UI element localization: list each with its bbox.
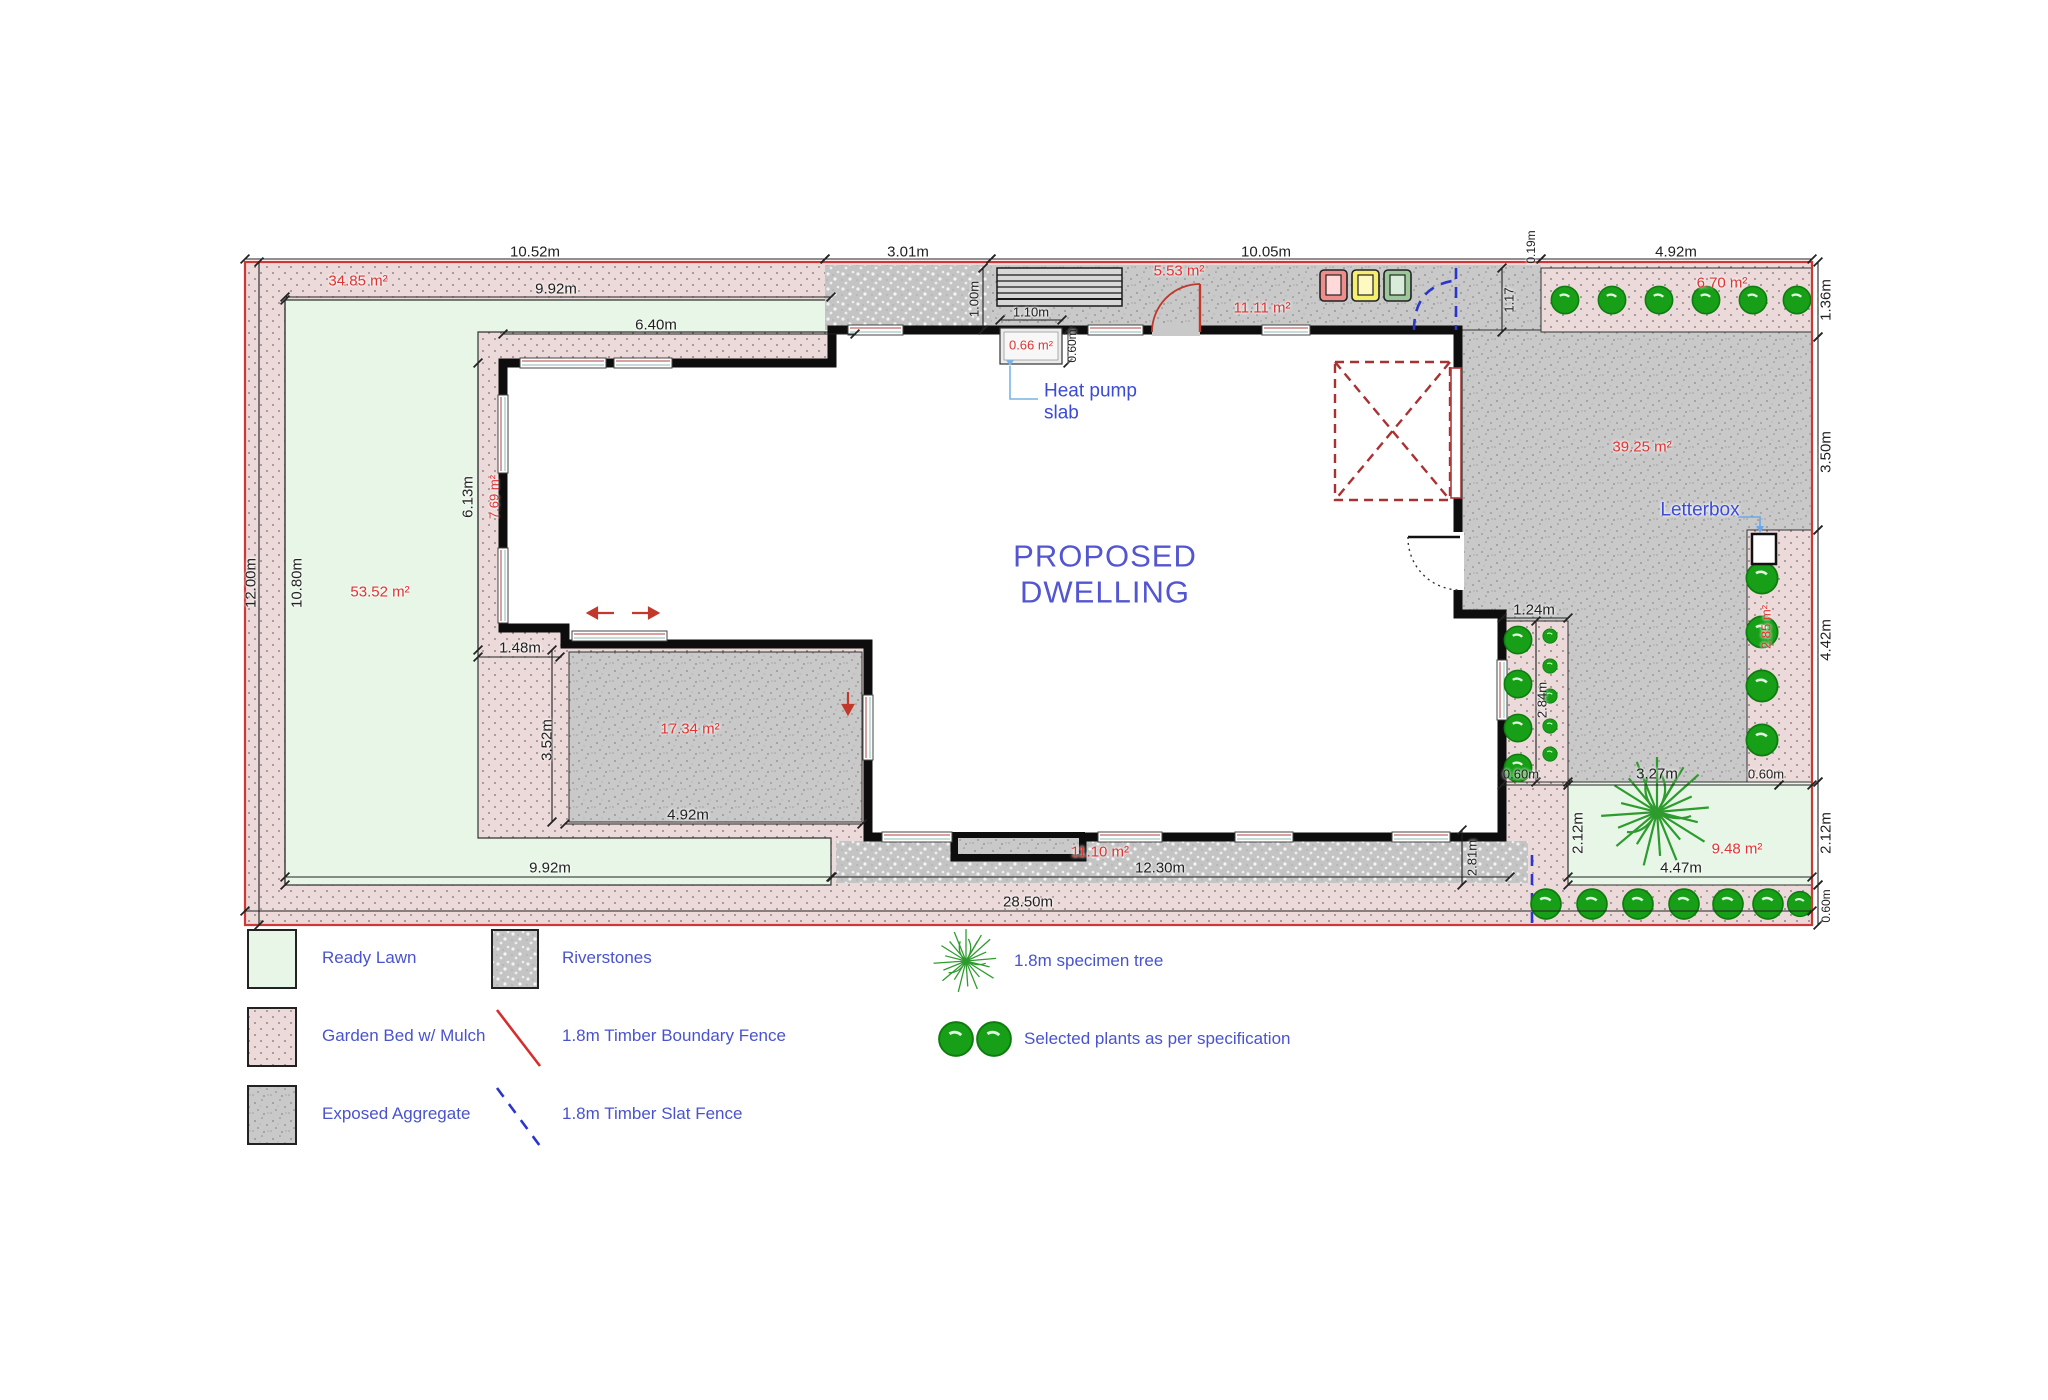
page-title-line2: DWELLING: [1020, 577, 1190, 608]
dim-niche-width: 1.10m: [1013, 306, 1049, 319]
dim-right-4: 2.12m: [1819, 812, 1834, 854]
dim-strip-end: 0.60m: [1503, 768, 1539, 781]
note-letterbox: Letterbox: [1660, 501, 1739, 520]
dim-left-lawn: 10.80m: [290, 558, 305, 608]
area-riverstones: 11.10 m²: [1071, 845, 1129, 860]
dim-bed-offset: 1.48m: [499, 641, 541, 656]
dim-strip-height: 2.84m: [1536, 682, 1549, 718]
legend-label-exposed-aggregate: Exposed Aggregate: [322, 1104, 470, 1124]
dim-top-3: 10.05m: [1241, 245, 1291, 260]
dim-courtyard-height: 3.52m: [540, 719, 555, 761]
site-plan-page: 10.52m 3.01m 10.05m 4.92m 0.19m 12.00m 1…: [0, 0, 2048, 1400]
dim-top-2: 3.01m: [887, 245, 929, 260]
letterbox: [1752, 534, 1776, 564]
area-niche: 0.66 m²: [1009, 339, 1053, 352]
area-courtyard: 17.34 m²: [660, 722, 719, 737]
dim-top-4: 4.92m: [1655, 245, 1697, 260]
legend-label-slat-fence: 1.8m Timber Slat Fence: [562, 1104, 742, 1124]
area-bed-plants: 6.70 m²: [1697, 276, 1748, 291]
dim-rear-lawn-top: 3.27m: [1636, 767, 1678, 782]
area-bed-top: 34.85 m²: [328, 274, 387, 289]
plant-bed-top-right: [1541, 268, 1812, 332]
dim-rear-lawn-left: 2.12m: [1571, 812, 1586, 854]
legend-label-ready-lawn: Ready Lawn: [322, 948, 417, 968]
dim-right-2: 3.50m: [1819, 431, 1834, 473]
legend-label-specimen-tree: 1.8m specimen tree: [1014, 951, 1163, 971]
dim-right-1: 1.36m: [1819, 279, 1834, 321]
dim-lawn-top: 9.92m: [535, 282, 577, 297]
legend-label-selected-plants: Selected plants as per specification: [1024, 1029, 1291, 1049]
area-bed-left: 7.69 m²: [488, 475, 501, 519]
dim-path-width: 1.00m: [968, 281, 981, 317]
dim-wing-left: 6.13m: [461, 476, 476, 518]
note-heat-pump-line1: Heat pump: [1044, 382, 1137, 401]
dim-niche-depth: 0.60m: [1066, 329, 1078, 362]
area-lawn: 53.52 m²: [350, 585, 409, 600]
dim-courtyard-width: 4.92m: [667, 808, 709, 823]
dim-right-3: 4.42m: [1819, 619, 1834, 661]
dim-lawn-bottom: 9.92m: [529, 861, 571, 876]
area-rear-lawn: 9.48 m²: [1712, 842, 1763, 857]
dim-strip-width: 1.24m: [1513, 603, 1555, 618]
dim-rear-lawn-bottom: 4.47m: [1660, 861, 1702, 876]
legend-label-garden-bed: Garden Bed w/ Mulch: [322, 1026, 485, 1046]
area-letterbox-strip: 2.85 m²: [1760, 605, 1773, 649]
dim-rear-lawn-top-right: 0.60m: [1748, 768, 1784, 781]
wheelie-bins: [1320, 270, 1411, 301]
note-heat-pump-line2: slab: [1044, 404, 1079, 423]
area-driveway: 39.25 m²: [1612, 440, 1671, 455]
window: [1451, 368, 1461, 498]
page-title-line1: PROPOSED: [1013, 541, 1197, 572]
dim-right-5: 0.60m: [1820, 889, 1832, 922]
dim-bed-gap: 1.17: [1503, 287, 1516, 312]
dim-top-gap: 0.19m: [1525, 230, 1537, 263]
site-plan-drawing: [0, 0, 2048, 1400]
porch-step: [955, 835, 1082, 857]
area-path: 5.53 m²: [1154, 264, 1205, 279]
entry-steps: [997, 268, 1122, 306]
dim-riverstones: 12.30m: [1135, 861, 1185, 876]
dim-riverstones-end: 2.81m: [1466, 840, 1479, 876]
dim-bottom-site: 28.50m: [1003, 895, 1053, 910]
legend-label-boundary-fence: 1.8m Timber Boundary Fence: [562, 1026, 786, 1046]
dim-left-site: 12.00m: [244, 558, 259, 608]
dim-top-1: 10.52m: [510, 245, 560, 260]
legend-label-riverstones: Riverstones: [562, 948, 652, 968]
dim-wing-top: 6.40m: [635, 318, 677, 333]
area-entry: 11.11 m²: [1234, 301, 1291, 316]
